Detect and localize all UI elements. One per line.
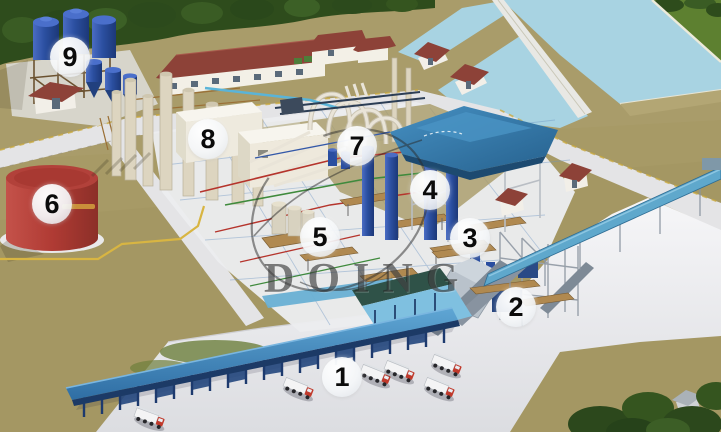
- plant-aerial-3d-render: 1 2 3 4 5 6 7 8 9 DOING: [0, 0, 721, 432]
- render-scene: [0, 0, 721, 432]
